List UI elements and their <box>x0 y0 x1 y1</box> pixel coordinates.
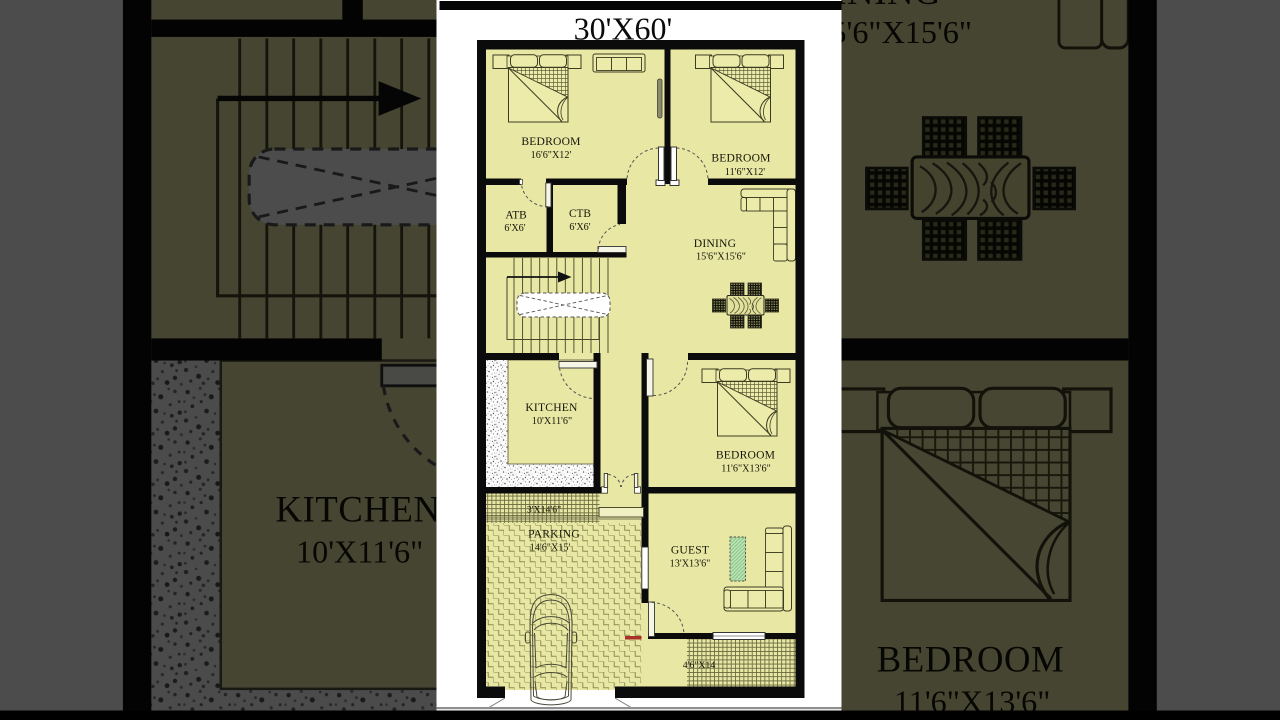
svg-text:30'X60': 30'X60' <box>574 11 673 47</box>
